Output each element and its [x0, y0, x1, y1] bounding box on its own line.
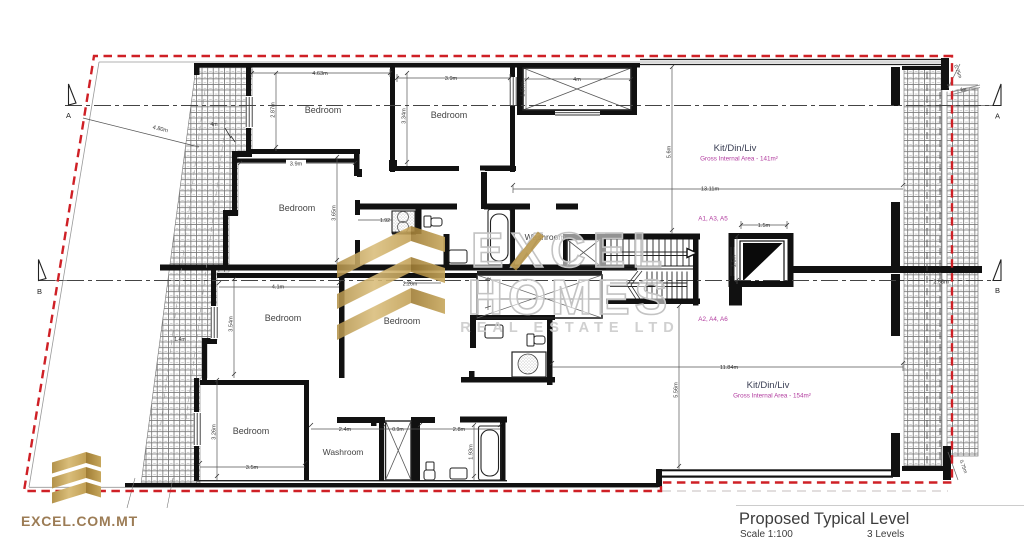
svg-text:A2, A4, A6: A2, A4, A6 — [698, 316, 728, 323]
svg-text:3.65m: 3.65m — [332, 205, 338, 221]
svg-text:1.92: 1.92 — [380, 218, 390, 224]
svg-text:5.56m: 5.56m — [674, 382, 680, 398]
svg-text:Scale 1:100: Scale 1:100 — [740, 529, 793, 540]
svg-text:3.34m: 3.34m — [402, 108, 408, 124]
svg-text:4.63m: 4.63m — [312, 71, 328, 77]
svg-text:Gross Internal Area - 154m²: Gross Internal Area - 154m² — [733, 393, 811, 400]
svg-text:Kit/Din/Liv: Kit/Din/Liv — [714, 143, 757, 154]
svg-text:1.5m: 1.5m — [732, 254, 738, 267]
svg-text:1.4m: 1.4m — [174, 337, 186, 343]
svg-text:Bedroom: Bedroom — [265, 313, 302, 323]
svg-text:4m: 4m — [573, 77, 581, 83]
svg-text:4m: 4m — [210, 122, 217, 128]
svg-text:EXCEL.COM.MT: EXCEL.COM.MT — [21, 513, 138, 529]
svg-text:1.93m: 1.93m — [469, 444, 475, 460]
svg-text:Bedroom: Bedroom — [384, 316, 421, 326]
svg-text:3.54m: 3.54m — [229, 316, 235, 332]
svg-text:HOMES: HOMES — [468, 271, 673, 325]
svg-text:REAL ESTATE LTD: REAL ESTATE LTD — [460, 320, 679, 336]
svg-text:Kit/Din/Liv: Kit/Din/Liv — [747, 380, 790, 391]
svg-text:1.5m: 1.5m — [758, 223, 771, 229]
svg-text:13.11m: 13.11m — [701, 187, 720, 193]
svg-text:Bedroom: Bedroom — [233, 426, 270, 436]
svg-text:11.84m: 11.84m — [720, 365, 739, 371]
svg-text:2.87m: 2.87m — [271, 102, 277, 118]
svg-text:Washroom: Washroom — [323, 447, 364, 457]
svg-text:Proposed Typical Level: Proposed Typical Level — [739, 510, 909, 528]
svg-text:2.8m: 2.8m — [453, 427, 466, 433]
svg-text:2.26m: 2.26m — [403, 281, 417, 287]
svg-text:2.4m: 2.4m — [339, 427, 352, 433]
svg-text:1.50m: 1.50m — [521, 81, 527, 97]
svg-text:Bedroom: Bedroom — [305, 105, 342, 115]
svg-text:3.9m: 3.9m — [290, 161, 303, 167]
svg-text:3 Levels: 3 Levels — [867, 529, 904, 540]
svg-text:B: B — [37, 287, 42, 296]
svg-text:B: B — [995, 286, 1000, 295]
svg-text:Bedroom: Bedroom — [431, 110, 468, 120]
svg-text:A1, A3, A5: A1, A3, A5 — [698, 216, 728, 223]
svg-text:Gross Internal Area - 141m²: Gross Internal Area - 141m² — [700, 156, 778, 163]
svg-text:A: A — [995, 112, 1000, 121]
svg-text:4m: 4m — [960, 88, 967, 94]
svg-text:5.6m: 5.6m — [667, 145, 673, 158]
svg-text:0.9m: 0.9m — [392, 427, 404, 433]
svg-text:4.1m: 4.1m — [272, 285, 285, 291]
svg-text:Bedroom: Bedroom — [279, 203, 316, 213]
svg-text:3.5m: 3.5m — [246, 465, 259, 471]
svg-text:A: A — [66, 111, 71, 120]
svg-text:3.9m: 3.9m — [445, 76, 458, 82]
svg-text:3.26m: 3.26m — [212, 424, 218, 440]
svg-text:EXCEL: EXCEL — [471, 224, 669, 278]
